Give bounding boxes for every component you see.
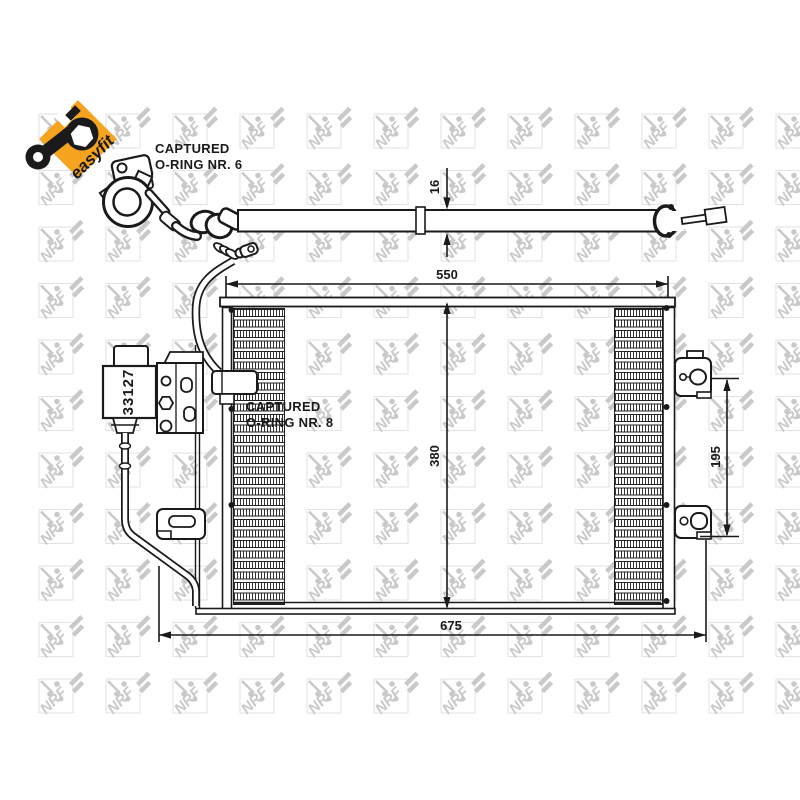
bracket-bottom-left: [157, 509, 205, 539]
left-tank: [223, 308, 232, 611]
oring8-line2: O-RING NR. 8: [246, 415, 333, 430]
dimension-550: 550: [226, 267, 668, 298]
oring8-line1: CAPTURED: [246, 399, 321, 414]
oring6-label: CAPTURED O-RING NR. 6: [155, 141, 242, 172]
bracket-mid-left: [157, 352, 203, 433]
easyfit-badge: easyfit: [26, 100, 119, 183]
dim-675-value: 675: [440, 618, 462, 633]
bracket-top-right: [675, 351, 711, 398]
inlet-fitting-block: [212, 371, 257, 394]
weld-dots: [229, 305, 670, 604]
bracket-bottom-right: [675, 506, 711, 539]
dim-550-value: 550: [436, 267, 458, 282]
right-tank: [663, 308, 675, 611]
dim-380-value: 380: [427, 445, 442, 467]
dimension-675: 675: [159, 540, 706, 642]
right-brackets: [675, 351, 711, 539]
left-assembly: [103, 261, 257, 606]
dim-195-value: 195: [708, 446, 723, 468]
dim-16-value: 16: [427, 180, 442, 194]
oring6-line1: CAPTURED: [155, 141, 230, 156]
part-number-label: 33127: [120, 369, 137, 416]
dimension-380: 380: [427, 302, 451, 609]
bottom-header: [196, 609, 675, 615]
product-drawing-page: NRFNRFNRFNRFNRFNRFNRFNRFNRFNRFNRFNRFNRFN…: [0, 0, 800, 800]
condenser-technical-drawing: easyfit CAPTURED O-RING NR. 6: [0, 0, 800, 800]
oring6-line2: O-RING NR. 6: [155, 157, 242, 172]
oring8-label: CAPTURED O-RING NR. 8: [246, 399, 333, 430]
